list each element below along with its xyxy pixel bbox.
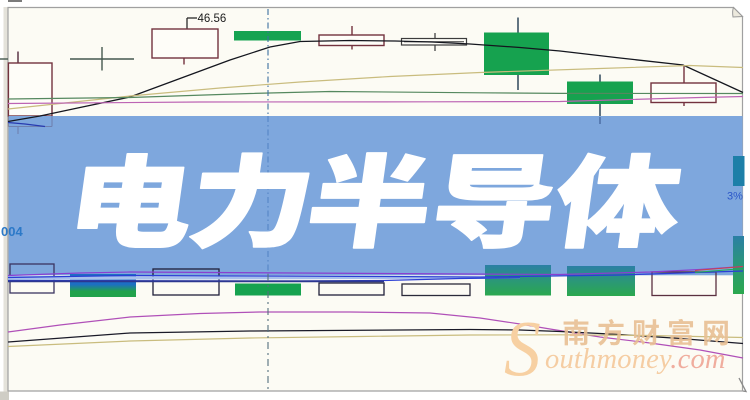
svg-text:46.56: 46.56 — [198, 13, 227, 25]
svg-text:S: S — [504, 304, 541, 392]
svg-text:004: 004 — [1, 224, 23, 239]
svg-text:3%: 3% — [727, 191, 743, 203]
svg-text:outhmoney.com: outhmoney.com — [545, 344, 726, 375]
